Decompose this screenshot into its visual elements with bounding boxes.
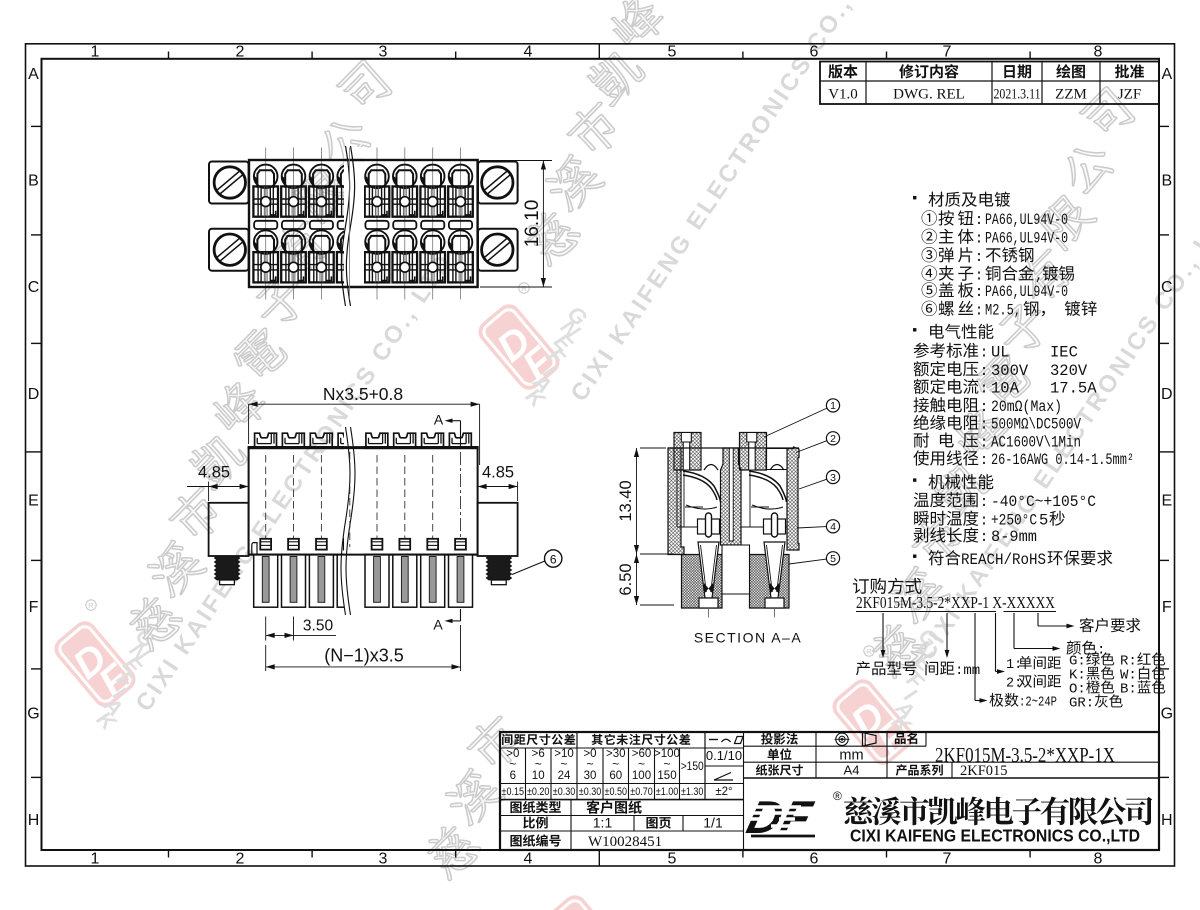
svg-text::: : (980, 529, 989, 546)
svg-text:3: 3 (379, 851, 388, 868)
svg-text:A: A (1161, 66, 1172, 83)
svg-text:6: 6 (810, 44, 819, 61)
svg-text:±0.30: ±0.30 (579, 786, 602, 798)
svg-text:B: B (28, 173, 39, 190)
svg-text:±1.30: ±1.30 (681, 786, 704, 798)
svg-text:5: 5 (1039, 512, 1048, 530)
svg-text:±0.70: ±0.70 (630, 786, 653, 798)
svg-text:8-9mm: 8-9mm (991, 528, 1037, 546)
svg-text:60: 60 (609, 770, 622, 782)
svg-text::: : (980, 452, 989, 469)
svg-text:,: , (1035, 268, 1043, 284)
svg-text:PA66,UL94V-0: PA66,UL94V-0 (985, 230, 1068, 248)
svg-text:UL: UL (991, 344, 1010, 362)
svg-text:10A: 10A (991, 380, 1020, 398)
svg-text:7: 7 (943, 44, 952, 61)
svg-text:~: ~ (638, 757, 645, 771)
svg-text:2: 2 (236, 44, 245, 61)
svg-text:3: 3 (830, 472, 836, 484)
svg-text::: : (975, 284, 984, 301)
svg-text:1:1: 1:1 (593, 815, 613, 831)
svg-text:6.50: 6.50 (617, 563, 635, 595)
svg-text:2KF015: 2KF015 (960, 763, 1008, 779)
svg-text:F: F (1162, 599, 1172, 616)
svg-text:±0.20: ±0.20 (527, 786, 550, 798)
svg-text:®: ® (833, 789, 842, 803)
svg-text:6: 6 (550, 553, 557, 567)
svg-text:~: ~ (535, 757, 542, 771)
svg-text:6: 6 (810, 851, 819, 868)
svg-text:1:: 1: (1006, 658, 1022, 673)
svg-text:CIXI KAIFENG ELECTRONICS CO.,L: CIXI KAIFENG ELECTRONICS CO.,LTD (850, 826, 1140, 846)
svg-text:B:: B: (1120, 682, 1137, 698)
svg-text:2021.3.11: 2021.3.11 (994, 87, 1041, 103)
svg-text:~: ~ (509, 757, 516, 771)
svg-text:(N−1)x3.5: (N−1)x3.5 (324, 646, 404, 666)
svg-text:10: 10 (532, 770, 545, 782)
svg-text:C: C (1161, 279, 1173, 296)
svg-text::: : (980, 494, 989, 511)
svg-text:B: B (1161, 173, 1172, 190)
svg-text:4: 4 (524, 44, 533, 61)
svg-text::2~24P: :2~24P (1019, 695, 1057, 711)
svg-text:24: 24 (558, 770, 571, 782)
svg-text:R: R (521, 284, 527, 293)
svg-text:DWG. REL: DWG. REL (893, 87, 965, 103)
svg-text:R: R (88, 601, 94, 610)
svg-text:REACH/RoHS: REACH/RoHS (961, 551, 1046, 569)
svg-text:IEC: IEC (1050, 344, 1078, 362)
svg-text:3.50: 3.50 (303, 618, 334, 635)
svg-text:A: A (434, 412, 444, 428)
svg-text:500MΩ\DC500V: 500MΩ\DC500V (991, 416, 1082, 434)
svg-text:~: ~ (612, 757, 619, 771)
svg-text:±0.30: ±0.30 (553, 786, 576, 798)
svg-text:0.1/10: 0.1/10 (706, 748, 742, 763)
svg-text:±2°: ±2° (715, 786, 732, 798)
svg-text:~: ~ (663, 757, 670, 771)
svg-text:M2.5,: M2.5, (985, 302, 1021, 320)
svg-text:JZF: JZF (1118, 87, 1141, 103)
svg-text:A: A (28, 66, 39, 83)
svg-text:PA66,UL94V-0: PA66,UL94V-0 (985, 283, 1068, 301)
svg-text::: : (980, 345, 989, 362)
svg-text:>150: >150 (681, 759, 704, 773)
svg-text:±0.15: ±0.15 (502, 786, 525, 798)
svg-text:8: 8 (1094, 851, 1103, 868)
svg-text:5: 5 (668, 44, 677, 61)
svg-text:SECTION A–A: SECTION A–A (694, 630, 802, 646)
svg-text:G: G (27, 706, 39, 723)
svg-text:G: G (1161, 706, 1173, 723)
svg-text:D: D (28, 386, 40, 403)
svg-text:GR:: GR: (1069, 696, 1094, 712)
svg-text:W10028451: W10028451 (588, 834, 662, 850)
svg-text:100: 100 (632, 770, 651, 782)
svg-text:V1.0: V1.0 (828, 87, 858, 103)
svg-text:5: 5 (830, 553, 836, 565)
svg-text:2KF015M-3.5-2*XXP-1 X-XXXXX: 2KF015M-3.5-2*XXP-1 X-XXXXX (856, 593, 1055, 612)
svg-text:26-16AWG 0.14-1.5mm²: 26-16AWG 0.14-1.5mm² (991, 451, 1134, 469)
svg-text:H: H (28, 812, 40, 829)
svg-text:300V: 300V (991, 362, 1029, 380)
svg-text:6: 6 (510, 770, 516, 782)
svg-text:A: A (433, 617, 443, 633)
svg-text:16.10: 16.10 (522, 200, 543, 248)
svg-text:4.85: 4.85 (482, 464, 514, 482)
svg-text::: : (980, 434, 989, 451)
svg-text:R: R (866, 647, 872, 656)
svg-text:30: 30 (584, 770, 597, 782)
svg-text:E: E (1161, 492, 1172, 509)
svg-text:4: 4 (830, 521, 836, 533)
svg-text::: : (975, 303, 984, 320)
svg-text:±1.00: ±1.00 (656, 786, 679, 798)
svg-text:AC1600V\1Min: AC1600V\1Min (991, 433, 1081, 451)
svg-text:320V: 320V (1050, 362, 1088, 380)
svg-text::: : (980, 399, 989, 416)
svg-text::mm: :mm (955, 663, 980, 679)
svg-text:17.5A: 17.5A (1050, 380, 1097, 398)
svg-text:1: 1 (830, 400, 836, 412)
svg-text::: : (975, 231, 984, 248)
svg-text:8: 8 (1094, 44, 1103, 61)
svg-text:1: 1 (91, 44, 100, 61)
svg-text:±0.50: ±0.50 (605, 786, 628, 798)
svg-text:3: 3 (379, 44, 388, 61)
svg-text:150: 150 (657, 770, 676, 782)
svg-text:1: 1 (91, 851, 100, 868)
svg-text:5: 5 (668, 851, 677, 868)
svg-text::: : (980, 417, 989, 434)
svg-text:E: E (28, 492, 39, 509)
svg-text:2: 2 (830, 433, 836, 445)
svg-text:mm: mm (839, 748, 863, 764)
svg-text::: : (980, 513, 989, 530)
svg-text:D: D (1161, 386, 1173, 403)
svg-text:7: 7 (943, 851, 952, 868)
svg-text:-40°C~+105°C: -40°C~+105°C (991, 493, 1096, 511)
svg-text::: : (980, 363, 989, 380)
svg-text::: : (980, 381, 989, 398)
svg-text:~: ~ (560, 757, 567, 771)
svg-text:ZZM: ZZM (1055, 87, 1087, 103)
svg-text:4: 4 (524, 851, 533, 868)
svg-text:Nx3.5+0.8: Nx3.5+0.8 (323, 384, 403, 404)
svg-text:PA66,UL94V-0: PA66,UL94V-0 (985, 211, 1068, 229)
svg-text:A4: A4 (844, 763, 860, 778)
svg-text:13.40: 13.40 (617, 480, 635, 521)
svg-text:+250°C: +250°C (991, 512, 1037, 530)
svg-text:~: ~ (586, 757, 593, 771)
svg-text:4.85: 4.85 (198, 464, 230, 482)
svg-text:1/1: 1/1 (703, 815, 723, 831)
svg-text:C: C (28, 279, 40, 296)
svg-text:H: H (1161, 812, 1173, 829)
svg-text:20mΩ(Max): 20mΩ(Max) (991, 398, 1062, 416)
svg-text::: : (975, 212, 984, 229)
svg-text::: : (975, 267, 984, 284)
svg-text:F: F (29, 599, 39, 616)
svg-text:2: 2 (236, 851, 245, 868)
svg-text::: : (975, 249, 984, 266)
